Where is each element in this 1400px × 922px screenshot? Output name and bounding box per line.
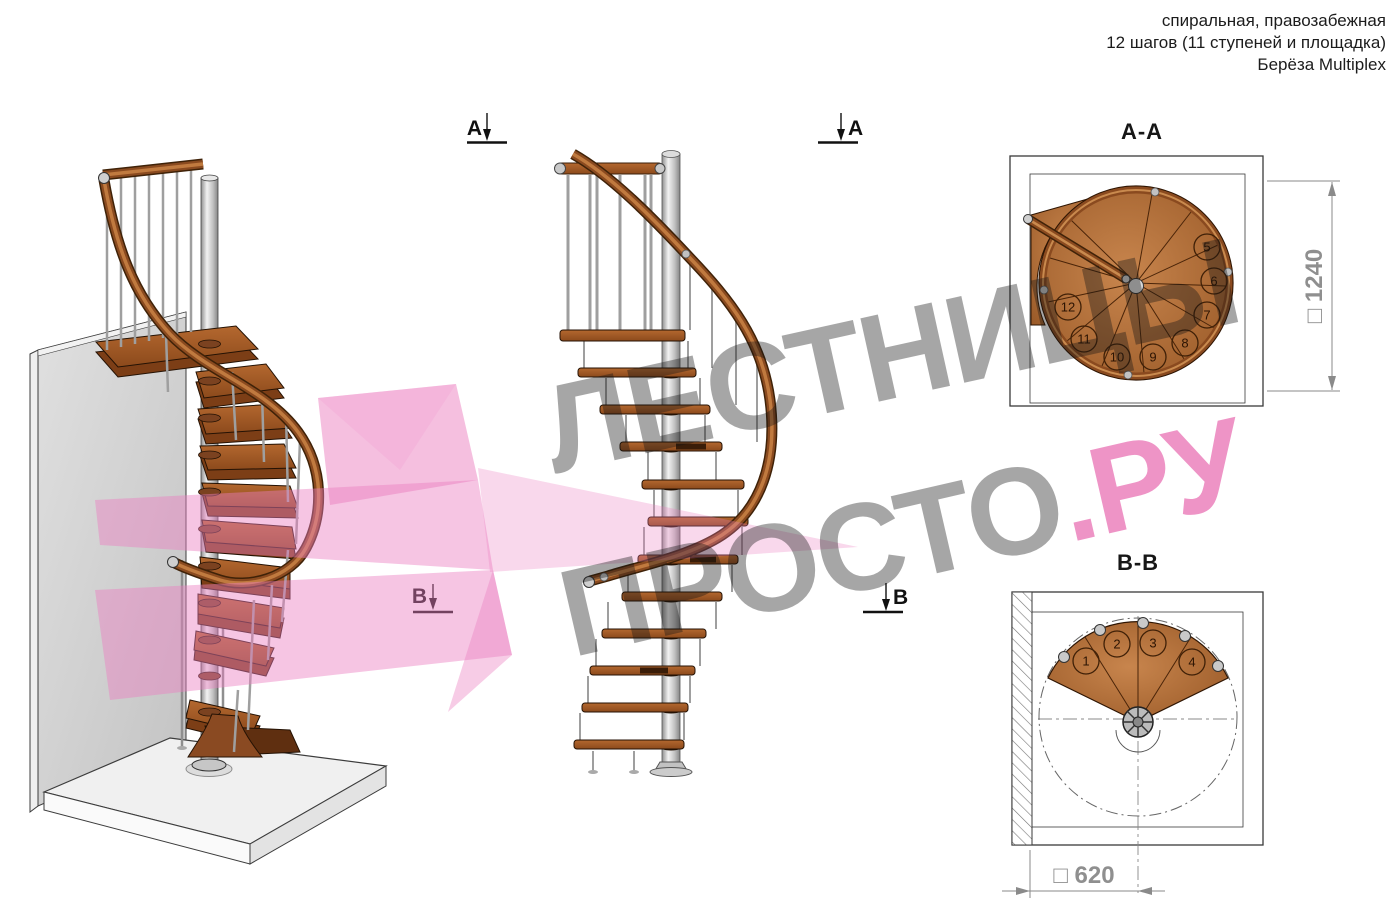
step-number: 5 — [1203, 240, 1210, 255]
wall-3d — [30, 312, 186, 812]
top-rail-elevation — [555, 163, 666, 174]
step-number: 12 — [1061, 300, 1075, 315]
drawing-sheet: А А В В А-А — [0, 0, 1400, 917]
step-number: 8 — [1181, 336, 1188, 351]
view-title: В-В — [1117, 550, 1159, 575]
section-marker-a-right: А — [818, 113, 863, 143]
title-line-material: Берёза Multiplex — [1106, 54, 1386, 76]
marker-letter: В — [412, 585, 427, 608]
step-number: 7 — [1203, 308, 1210, 323]
title-line-type: спиральная, правозабежная — [1106, 10, 1386, 32]
step-number: 4 — [1188, 655, 1195, 670]
section-arrow-icon — [483, 129, 491, 141]
section-marker-a-left: А — [467, 113, 507, 143]
dimension-label: □ 1240 — [1301, 249, 1328, 324]
step-number: 11 — [1077, 332, 1091, 347]
view-3d-render — [30, 160, 386, 864]
view-elevation — [555, 151, 772, 777]
pole-top-aa — [1129, 279, 1144, 294]
title-block: спиральная, правозабежная 12 шагов (11 с… — [1106, 10, 1386, 76]
marker-letter: А — [848, 117, 863, 140]
step-number: 9 — [1149, 350, 1156, 365]
staircase-drawing: А А В В А-А — [0, 0, 1400, 917]
step-number: 10 — [1110, 350, 1124, 365]
wall-hatch-bb — [1012, 592, 1032, 845]
marker-letter: В — [893, 586, 908, 609]
step-number: 2 — [1113, 637, 1120, 652]
section-marker-b-left: В — [412, 584, 453, 612]
section-arrow-icon — [837, 129, 845, 141]
step-number: 1 — [1082, 654, 1089, 669]
step-number: 6 — [1210, 274, 1217, 289]
title-line-steps: 12 шагов (11 ступеней и площадка) — [1106, 32, 1386, 54]
dimension-label: □ 620 — [1053, 862, 1114, 889]
step-number: 3 — [1149, 636, 1156, 651]
marker-letter: А — [467, 117, 482, 140]
section-arrow-icon — [429, 598, 437, 610]
view-plan-bb: В-В — [1002, 550, 1263, 898]
section-arrow-icon — [882, 599, 890, 611]
view-plan-aa: А-А — [1010, 119, 1340, 406]
view-title: А-А — [1121, 119, 1163, 144]
section-marker-b-right: В — [863, 583, 908, 612]
